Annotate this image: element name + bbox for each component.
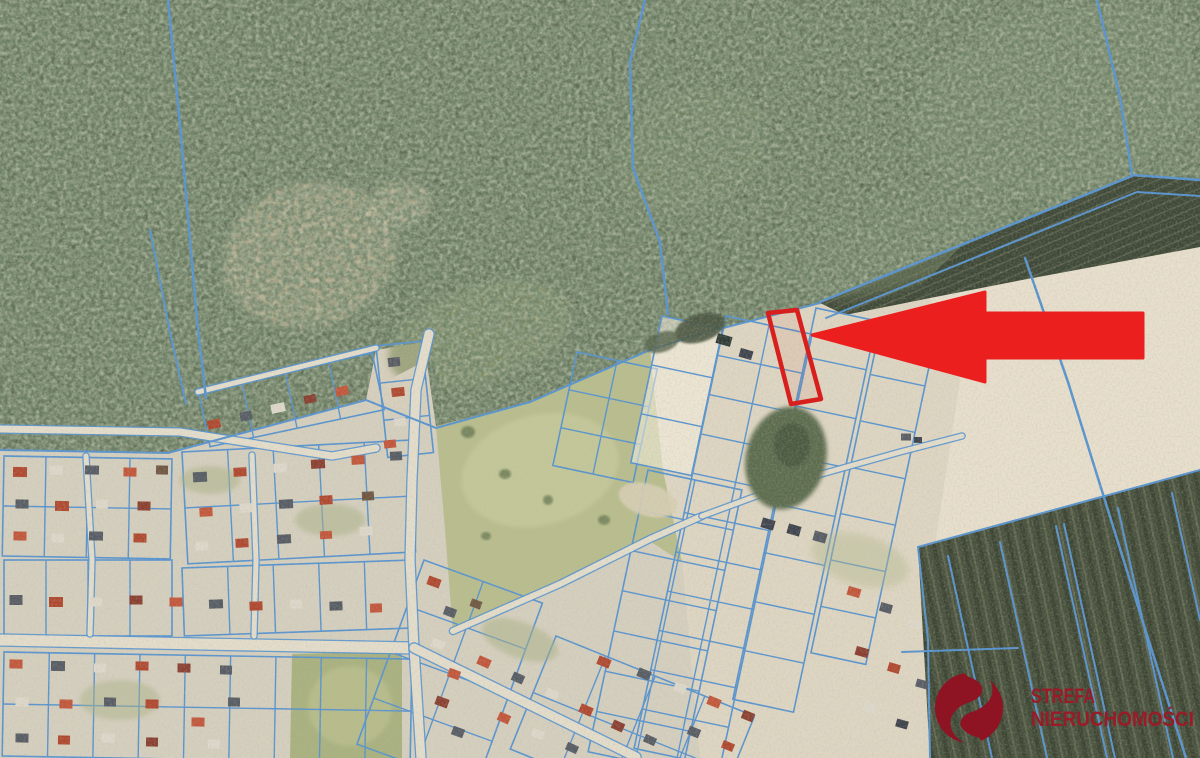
photo-grain [0, 0, 1200, 758]
map-layers [0, 0, 1200, 758]
aerial-map: STREFA NIERUCHOMOŚCI [0, 0, 1200, 758]
logo-mark [935, 673, 1003, 743]
logo-text-line2: NIERUCHOMOŚCI [1031, 706, 1194, 731]
listing-map-image: STREFA NIERUCHOMOŚCI [0, 0, 1200, 758]
logo-text-line1: STREFA [1031, 684, 1095, 708]
